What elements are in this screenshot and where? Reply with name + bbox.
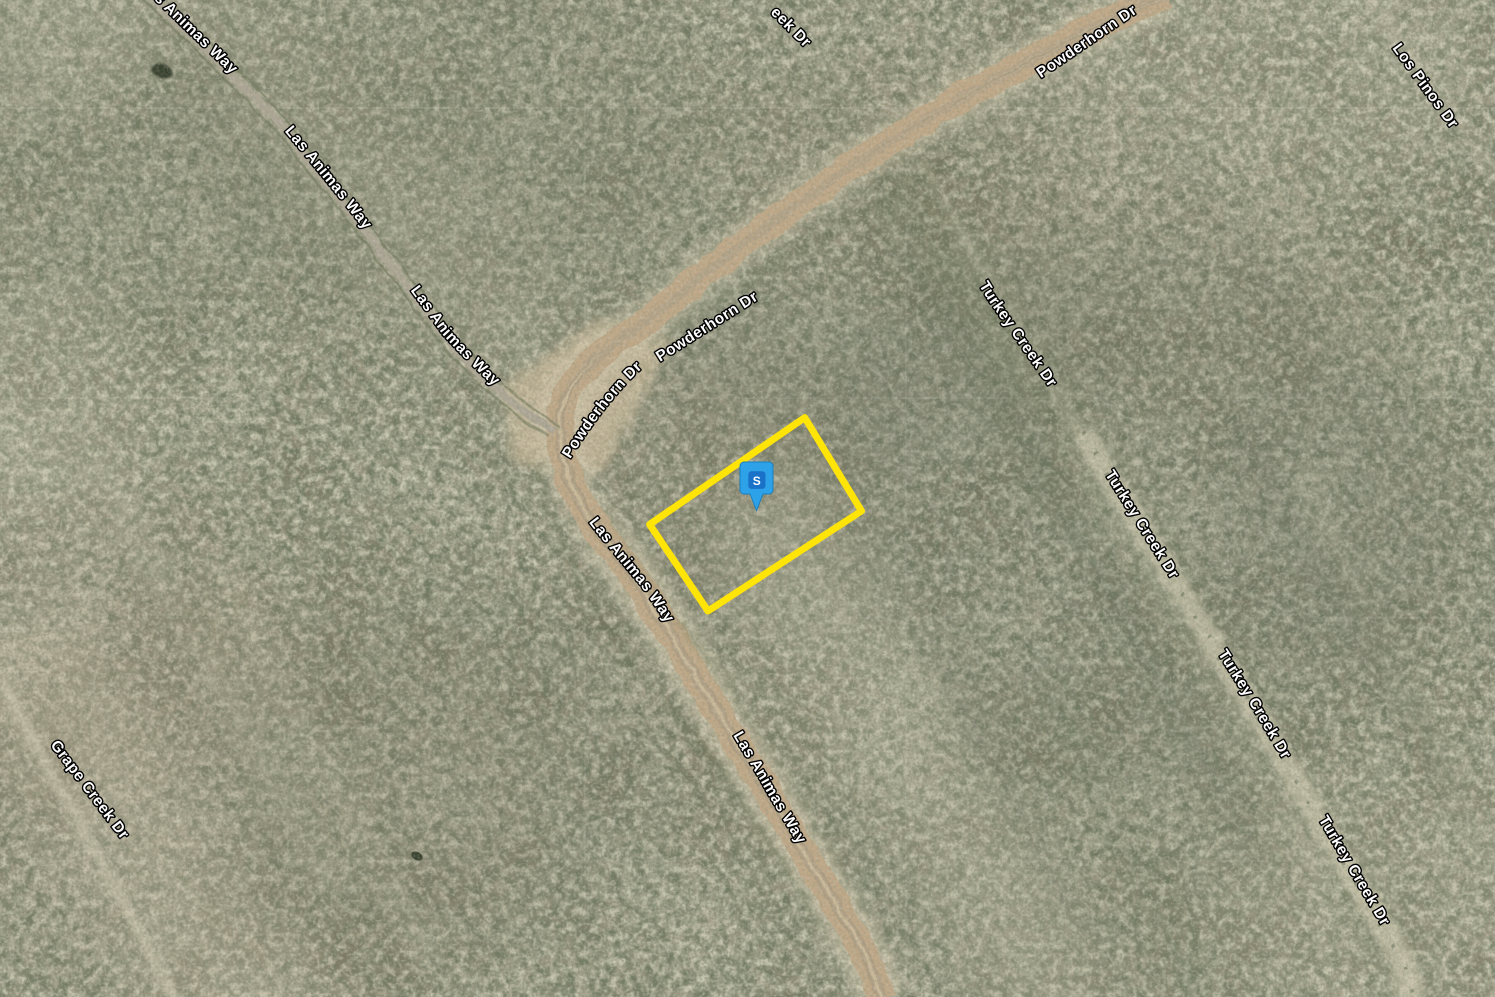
svg-text:S: S [753,474,761,488]
